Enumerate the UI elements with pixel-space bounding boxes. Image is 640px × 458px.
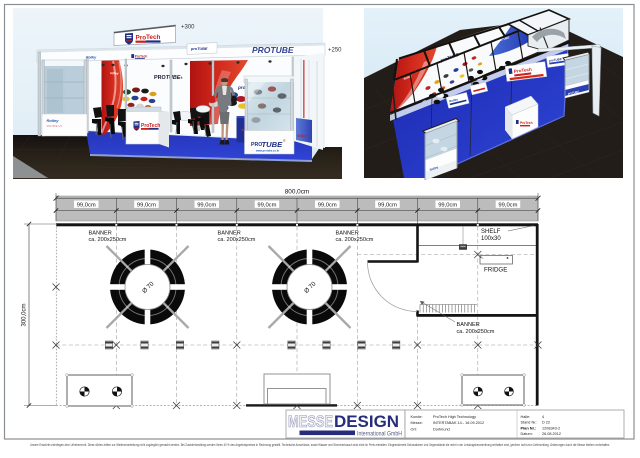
svg-text:4: 4 [542, 415, 544, 419]
svg-text:Kunde:: Kunde: [411, 415, 423, 419]
svg-text:D 22: D 22 [542, 421, 550, 425]
svg-text:Rolley: Rolley [47, 118, 60, 123]
svg-text:MESSE: MESSE [288, 413, 333, 431]
svg-text:SHELF: SHELF [481, 229, 501, 235]
svg-text:ca. 200x250cm: ca. 200x250cm [89, 237, 127, 243]
svg-text:Halle:: Halle: [521, 415, 531, 419]
svg-text:800,0cm: 800,0cm [285, 189, 310, 196]
svg-text:ProTech High Technology: ProTech High Technology [433, 415, 476, 419]
svg-text:BANNER: BANNER [218, 231, 241, 237]
svg-text:International GmbH: International GmbH [357, 431, 402, 438]
svg-text:26.08.2012: 26.08.2012 [542, 432, 561, 436]
svg-text:99,0cm: 99,0cm [378, 203, 397, 209]
svg-text:Messe:: Messe: [411, 421, 423, 425]
svg-text:www.rolley.co.kr: www.rolley.co.kr [47, 125, 63, 128]
svg-text:+300: +300 [181, 25, 195, 31]
svg-text:Dortmund: Dortmund [433, 427, 450, 431]
svg-text:100x30: 100x30 [481, 236, 501, 242]
svg-text:SHRE: SHRE [297, 134, 308, 138]
svg-text:ca. 200x250cm: ca. 200x250cm [457, 329, 495, 335]
svg-text:Datum:: Datum: [521, 432, 533, 436]
svg-text:Pro: Pro [136, 35, 147, 42]
svg-text:99,0cm: 99,0cm [438, 203, 457, 209]
svg-text:Tech: Tech [146, 34, 161, 41]
svg-text:Stand Nr.:: Stand Nr.: [521, 421, 538, 425]
svg-text:Ort:: Ort: [411, 427, 417, 431]
svg-text:BANNER: BANNER [336, 231, 359, 237]
svg-text:www.protube.co.kr: www.protube.co.kr [256, 149, 279, 153]
svg-text:99,0cm: 99,0cm [197, 203, 216, 209]
svg-text:FRIDGE: FRIDGE [484, 267, 507, 274]
svg-text:99,0cm: 99,0cm [498, 203, 517, 209]
svg-text:1208343-2: 1208343-2 [542, 426, 560, 430]
svg-text:BANNER: BANNER [89, 231, 112, 237]
svg-text:99,0cm: 99,0cm [257, 203, 276, 209]
svg-text:Unsere Entwürfe unterliegen de: Unsere Entwürfe unterliegen dem Urheberr… [30, 443, 610, 447]
svg-text:INTERTABAK 14.- 16.09.2012: INTERTABAK 14.- 16.09.2012 [433, 421, 484, 425]
svg-text:ca. 200x250cm: ca. 200x250cm [336, 237, 374, 243]
svg-text:BANNER: BANNER [457, 322, 480, 328]
svg-text:PROTUBE: PROTUBE [252, 45, 294, 55]
svg-text:99,0cm: 99,0cm [318, 203, 337, 209]
svg-text:Plan Nr.:: Plan Nr.: [521, 425, 537, 430]
svg-text:ca. 200x250cm: ca. 200x250cm [218, 237, 256, 243]
svg-text:TUBE: TUBE [262, 140, 284, 149]
svg-text:99,0cm: 99,0cm [137, 203, 156, 209]
svg-text:99,0cm: 99,0cm [77, 203, 96, 209]
svg-text:proTUBE: proTUBE [190, 47, 208, 51]
svg-text:300,0cm: 300,0cm [22, 303, 28, 326]
svg-text:ProTech: ProTech [520, 121, 533, 125]
svg-text:+250: +250 [328, 48, 342, 54]
svg-text:DESIGN: DESIGN [334, 413, 399, 431]
svg-text:PROTUBE®: PROTUBE® [154, 75, 183, 81]
svg-text:rolley: rolley [110, 71, 119, 75]
